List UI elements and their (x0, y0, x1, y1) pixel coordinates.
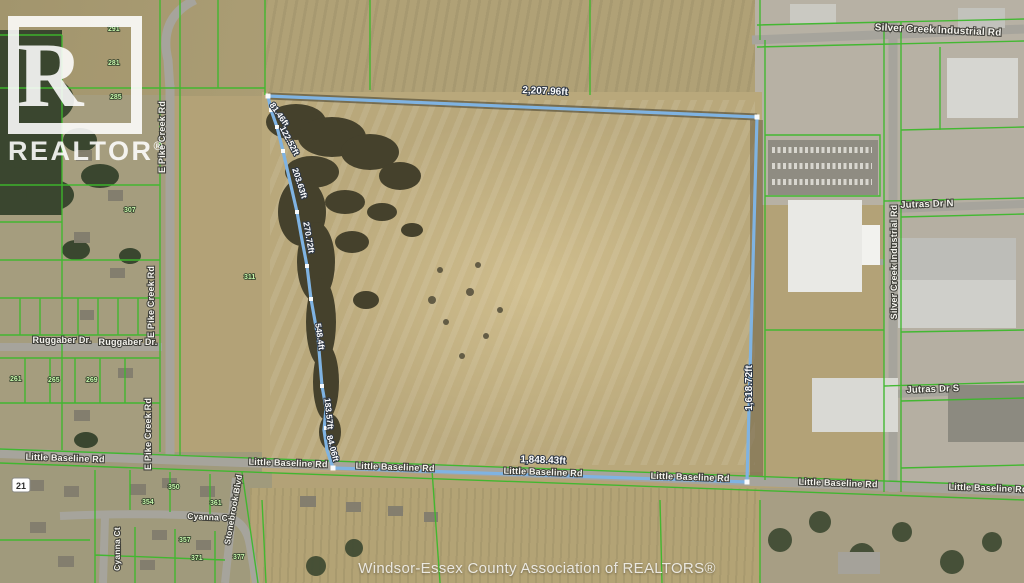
registered-symbol: ® (154, 139, 163, 153)
realtor-logo-letter: R (17, 32, 83, 118)
parcel-number: 354 (142, 499, 154, 506)
parcel-number: 269 (86, 377, 98, 384)
parcel-number: 311 (244, 274, 255, 281)
road-label-silver-creek-vertical: Silver Creek Industrial Rd (889, 205, 899, 320)
parcel-number: 357 (179, 537, 191, 544)
road-label-cyanna-horizontal: Cyanna Ct (187, 511, 231, 523)
measurement-north: 2,207.96ft (522, 85, 569, 98)
field-scrub-dots (428, 262, 503, 359)
road-label-ruggaber-1: Ruggaber Dr. (33, 335, 92, 345)
parcel-number: 261 (10, 376, 22, 383)
measurement-east: 1,618.72ft (744, 365, 755, 411)
parcel-number: 350 (168, 484, 180, 491)
measurement-south: 1,848.43ft (520, 454, 567, 467)
highway-shield-21: 21 (12, 478, 30, 492)
road-label-ruggaber-2: Ruggaber Dr. (99, 337, 158, 347)
realtor-watermark: R REALTOR® (8, 16, 162, 167)
footer-credit: Windsor-Essex County Association of REAL… (0, 560, 1024, 577)
road-label-jutras-n: Jutras Dr N (900, 198, 954, 211)
road-label-jutras-s: Jutras Dr S (906, 383, 959, 396)
aerial-map: 2,207.96ft 1,618.72ft 1,848.43ft 81.46ft… (0, 0, 1024, 583)
road-label-pike-creek-3: E Pike Creek Rd (143, 398, 153, 470)
highway-shield-number: 21 (16, 481, 26, 491)
parcel-number: 265 (48, 377, 60, 384)
realtor-wordmark: REALTOR® (8, 136, 162, 167)
woodlot-on-property (266, 104, 423, 450)
road-label-stonebrook: Stonebrook Blvd (222, 474, 244, 546)
parcel-number: 361 (210, 500, 222, 507)
parcel-number: 307 (124, 207, 136, 214)
realtor-logo-box: R (8, 16, 142, 134)
road-label-little-baseline-1: Little Baseline Rd (25, 452, 104, 465)
road-label-pike-creek-2: E Pike Creek Rd (146, 266, 156, 338)
